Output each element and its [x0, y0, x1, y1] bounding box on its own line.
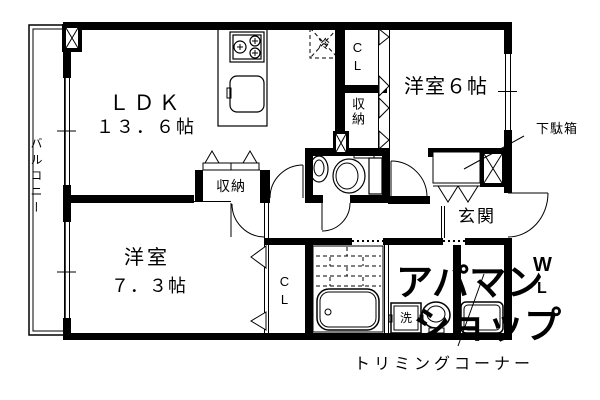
closet-upper-label: CL	[351, 40, 364, 76]
ldk-size-label: １３．６帖	[96, 117, 196, 137]
wall	[63, 333, 512, 340]
wall	[383, 238, 443, 245]
wall	[350, 195, 382, 203]
wall	[63, 22, 512, 30]
watermark-l: L	[537, 280, 547, 297]
room7-label: 洋室	[124, 246, 170, 269]
closet-lower-label: CL	[278, 274, 291, 310]
trimming-corner-label: トリミングコーナー	[354, 355, 534, 373]
pipe-space-top-left	[62, 24, 82, 52]
shoe-cabinet-label: 下駄箱	[536, 121, 578, 136]
refrigerator-label: 冷	[318, 37, 330, 51]
wall	[453, 245, 461, 333]
wall	[465, 238, 512, 245]
wall	[504, 238, 512, 340]
column-storage-label: 収納	[351, 97, 364, 127]
wall	[305, 245, 313, 333]
shoe-cabinet-box	[433, 152, 480, 183]
pipe-space-entrance	[480, 150, 506, 187]
watermark-line1: アパマン	[396, 262, 543, 303]
floorplan-canvas: アパマン ショップ W L	[0, 0, 600, 400]
wall	[382, 148, 390, 203]
wall	[264, 238, 352, 245]
watermark-w: W	[533, 254, 552, 276]
room7-size-label: ７．３帖	[111, 276, 187, 296]
wall	[195, 170, 203, 201]
entrance-label: 玄関	[458, 207, 496, 226]
floorplan-graphic: アパマン ショップ W L	[0, 0, 600, 400]
wall	[305, 195, 323, 203]
room6-label: 洋室６帖	[404, 75, 488, 98]
hall-storage-label: 収納	[216, 178, 246, 194]
wall	[388, 196, 430, 204]
wall	[504, 22, 512, 54]
wall	[260, 170, 270, 203]
washer-label: 洗	[400, 311, 412, 325]
balcony-label: バルコニー	[30, 137, 42, 217]
wall	[305, 148, 313, 203]
ldk-label: ＬＤＫ	[109, 92, 184, 115]
wall	[63, 195, 194, 203]
wall	[63, 185, 71, 222]
pipe-space-middle	[333, 131, 349, 155]
